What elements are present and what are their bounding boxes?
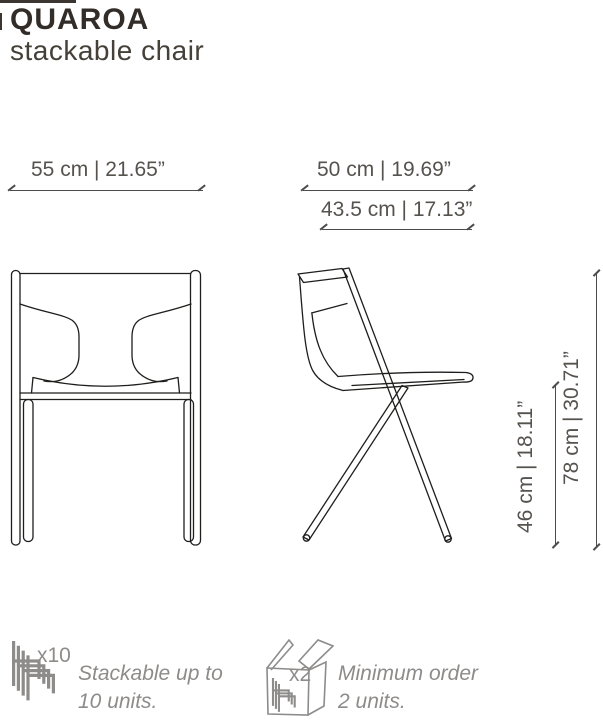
- stack-count-badge: x10: [37, 644, 71, 668]
- front-seat: [20, 378, 191, 400]
- minimum-order-line1: Minimum order: [338, 660, 478, 688]
- chair-side-view-drawing: [294, 264, 478, 548]
- stackable-feature-line2: 10 units.: [78, 688, 223, 716]
- product-subtitle: stackable chair: [10, 35, 204, 67]
- seat-depth-dimension-label: 43.5 cm | 17.13”: [321, 198, 472, 222]
- depth-dimension-line: [303, 190, 473, 191]
- minimum-order-line2: 2 units.: [338, 688, 478, 716]
- side-seat: [338, 372, 473, 390]
- front-backrest: [20, 274, 191, 382]
- seat-depth-dimension-line: [322, 229, 472, 230]
- front-front-legs: [24, 400, 194, 542]
- chair-front-view-drawing: [8, 264, 204, 548]
- stackable-feature-line1: Stackable up to: [78, 660, 223, 688]
- width-dimension-line: [10, 190, 203, 191]
- side-front-leg: [303, 386, 408, 542]
- width-dimension-label: 55 cm | 21.65”: [31, 158, 165, 182]
- side-backrest: [298, 269, 348, 391]
- seat-height-dimension-label: 46 cm | 18.11”: [514, 401, 538, 533]
- depth-dimension-label: 50 cm | 19.69”: [317, 158, 451, 182]
- order-count-badge: x2: [289, 663, 311, 687]
- spec-sheet: QUAROA stackable chair 55 cm | 21.65” 50…: [0, 0, 603, 724]
- product-name: QUAROA: [10, 3, 149, 37]
- seat-height-dimension-line: [555, 385, 556, 545]
- stackable-feature-text: Stackable up to 10 units.: [78, 660, 223, 716]
- front-back-legs: [12, 271, 201, 546]
- cropped-artifact-left: [0, 13, 2, 30]
- total-height-dimension-label: 78 cm | 30.71”: [560, 351, 584, 485]
- minimum-order-feature-text: Minimum order 2 units.: [338, 660, 478, 716]
- total-height-dimension-line: [596, 273, 597, 547]
